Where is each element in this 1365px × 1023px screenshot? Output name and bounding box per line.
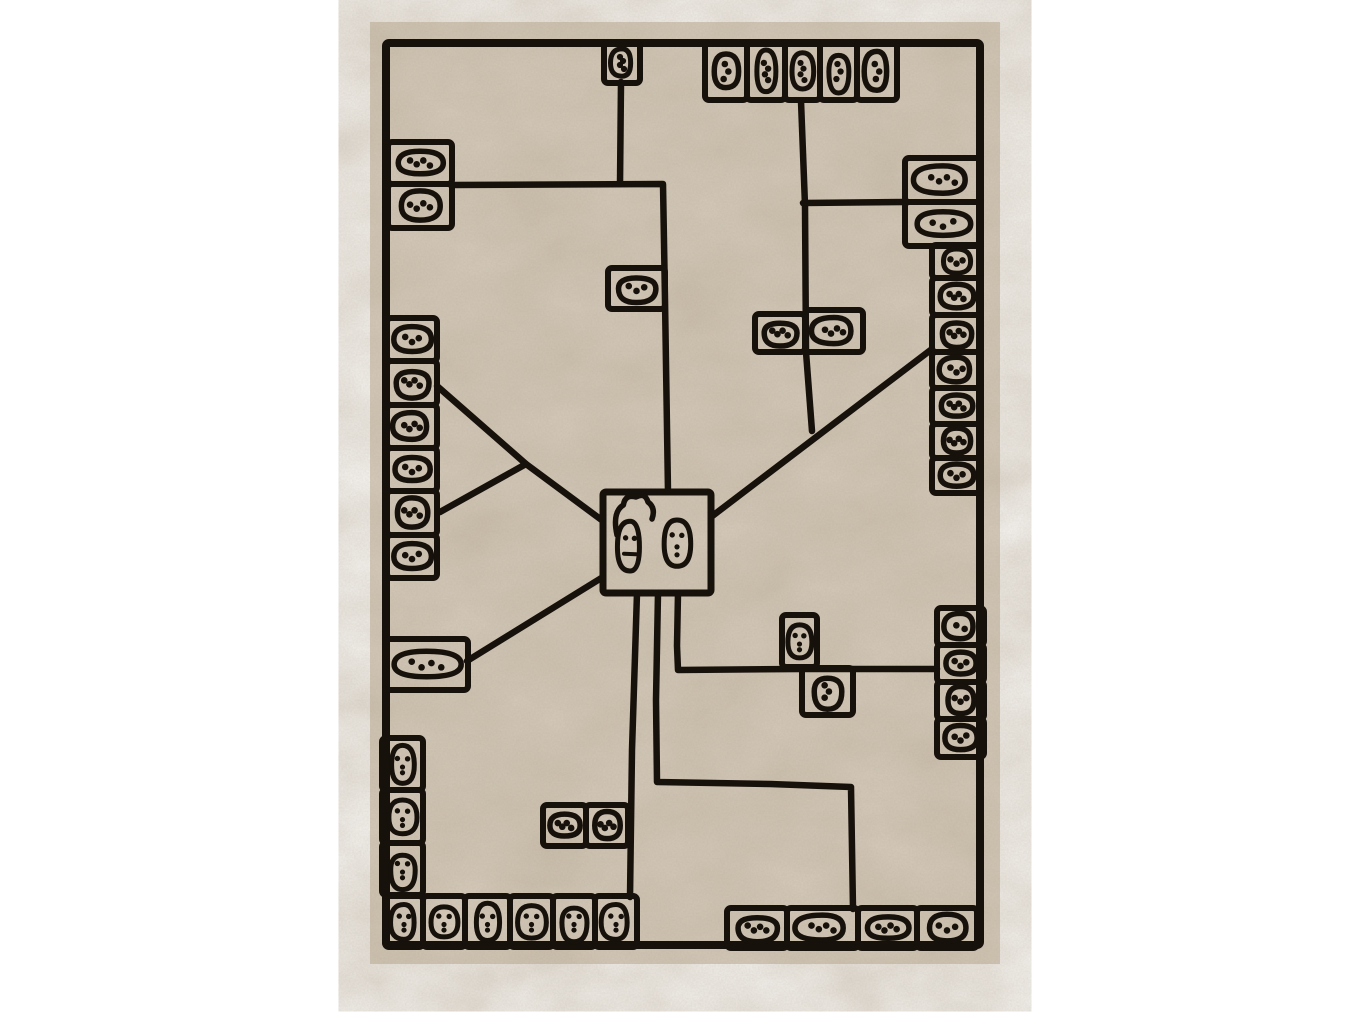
pebble-dot [959,366,966,373]
pebble-dot [837,68,843,74]
pebble-dot [887,922,894,929]
pebble-dot [416,512,423,519]
pebble-dot [409,339,416,346]
pebble-dot [402,552,409,559]
pebble-dot [413,161,420,168]
pebble-dot [821,694,828,701]
pebble-dot [960,439,967,446]
face-eye [608,913,613,918]
face-eye [632,536,637,541]
face-mouth [400,823,405,828]
pebble-dot [602,825,609,832]
pebble-dot [415,465,422,472]
pebble-dot [963,659,970,666]
pebble-dot [959,257,965,263]
pebble-dot [876,68,883,75]
pebble-dot [757,924,764,931]
pebble-dot [800,66,806,72]
pebble-dot [961,626,968,633]
pebble-dot [936,178,943,185]
face-eye [534,914,539,919]
face-mouth [529,927,534,932]
pebble-dot [416,382,423,389]
pebble-dot [725,68,732,75]
face-eye [670,532,675,537]
line-upper-right-branch [803,202,905,203]
pebble-dot [950,218,957,225]
pebble-dot [402,334,409,341]
face-nose [571,922,576,927]
pebble-dot [957,663,964,670]
face-nose [485,922,490,927]
face-eye [480,913,485,918]
pebble-dot [826,688,833,695]
face-eye [577,914,582,919]
pebble-dot [957,737,964,744]
pebble-dot [801,77,807,83]
face-eye [395,808,400,813]
pebble-dot [427,162,434,169]
pebble-dot [761,60,767,66]
pebble-dot [409,469,416,476]
pebble-dot [411,377,418,384]
pebble-dot [956,400,963,407]
face-eye [397,913,402,918]
pebble-dot [427,204,434,211]
pebble-dot [415,551,422,558]
face-eye [490,914,495,919]
face-eye [801,633,806,638]
pebble-dot [960,405,967,412]
pebble-dot [406,426,413,433]
pebble-dot [779,327,786,334]
pebble-dot [963,732,970,739]
face-nose [400,869,405,874]
pebble-dot [722,61,729,68]
pebble-dot [951,733,958,740]
pebble-dot [765,65,771,71]
pebble-dot [407,157,414,164]
pebble-dot [568,825,575,832]
pebble-dot [402,464,409,471]
pebble-dot [821,682,828,689]
face-nose [529,922,534,927]
pebble-dot [808,922,815,929]
face-mouth [613,927,618,932]
face-eye [623,535,628,540]
pebble-dot [409,556,416,563]
pebble-dot [797,71,803,77]
pebble-dot [420,200,427,207]
face-nose [674,544,679,549]
pebble-dot [401,507,408,514]
pebble-dot [407,201,414,208]
face-mouth [571,927,576,932]
face-eye [619,914,624,919]
line-top-cell-stem [620,82,621,184]
pebble-dot [420,157,427,164]
face-eye [395,861,400,866]
pebble-dot [952,924,959,931]
rug-drawing [0,0,1365,1023]
face-nose [797,641,802,646]
face-eye [792,633,797,638]
pebble-dot [406,381,413,388]
pebble-dot [957,698,964,705]
pebble-dot [610,823,617,830]
face-eye [566,913,571,918]
pebble-dot [953,622,960,629]
pebble-dot [784,332,791,339]
pebble-dot [438,664,445,671]
pebble-dot [641,284,648,291]
pebble-dot [881,927,888,934]
face-nose [400,817,405,822]
pebble-dot [408,658,415,665]
pebble-dot [830,927,837,934]
pebble-dot [928,174,935,181]
face-mouth [797,647,802,652]
pebble-dot [413,205,420,212]
pebble-dot [563,820,570,827]
pebble-dot [944,174,951,181]
face-eye [679,533,684,538]
pebble-dot [834,61,840,67]
pebble-dot [411,507,418,514]
face-mouth [400,875,405,880]
pebble-dot [633,288,640,295]
pebble-dot [816,926,823,933]
pebble-dot [947,470,954,477]
pebble-dot [621,66,627,72]
face-eye [406,914,411,919]
pebble-dot [960,331,967,338]
face-eye [405,861,410,866]
pebble-dot [947,256,953,262]
face-mouth [441,927,446,932]
pebble-dot [944,927,951,934]
pebble-dot [720,76,727,83]
pebble-dot [401,377,408,384]
pebble-dot [428,660,435,667]
pebble-dot [956,291,963,298]
pebble-dot [751,927,758,934]
pebble-dot [406,511,413,518]
pebble-dot [873,76,880,83]
pebble-dot [415,335,422,342]
pebble-dot [947,364,954,371]
face-eye [524,913,529,918]
pebble-dot [953,369,960,376]
pebble-dot [951,333,958,340]
face-mouth [674,552,679,557]
face-nose [613,922,618,927]
pebble-dot [929,219,936,226]
pebble-dot [951,658,958,665]
pebble-dot [953,260,959,266]
face-mouth [485,927,490,932]
pebble-dot [960,296,967,303]
pebble-dot [823,922,830,929]
pebble-dot [416,424,423,431]
pebble-dot [951,695,958,702]
pebble-dot [940,223,947,230]
pebble-dot [833,76,839,82]
face-nose [401,922,406,927]
pebble-dot [951,179,958,186]
product-photo [0,0,1365,1023]
pebble-dot [625,283,632,290]
pebble-dot [953,475,960,482]
face-mouth [400,770,405,775]
pebble-dot [762,71,768,77]
face-eye [395,756,400,761]
face-nose [441,922,446,927]
pebble-dot [893,926,900,933]
pebble-dot [936,922,943,929]
pebble-dot [828,330,835,337]
pebble-dot [765,77,771,83]
pebble-dot [744,922,751,929]
face-eye [447,914,452,919]
pebble-dot [418,664,425,671]
rug-art [0,0,1365,1023]
pebble-dot [871,61,878,68]
face-mouth [401,927,406,932]
pebble-dot [763,927,770,934]
pebble-dot [959,471,966,478]
pebble-dot [797,60,803,66]
face-eye [405,809,410,814]
pebble-dot [840,329,847,336]
pebble-dot [834,325,841,332]
pebble-dot [963,695,970,702]
face-eye [436,913,441,918]
pebble-dot [822,326,829,333]
face-nose [400,764,405,769]
face-eye [405,756,410,761]
pebble-dot [875,924,882,931]
